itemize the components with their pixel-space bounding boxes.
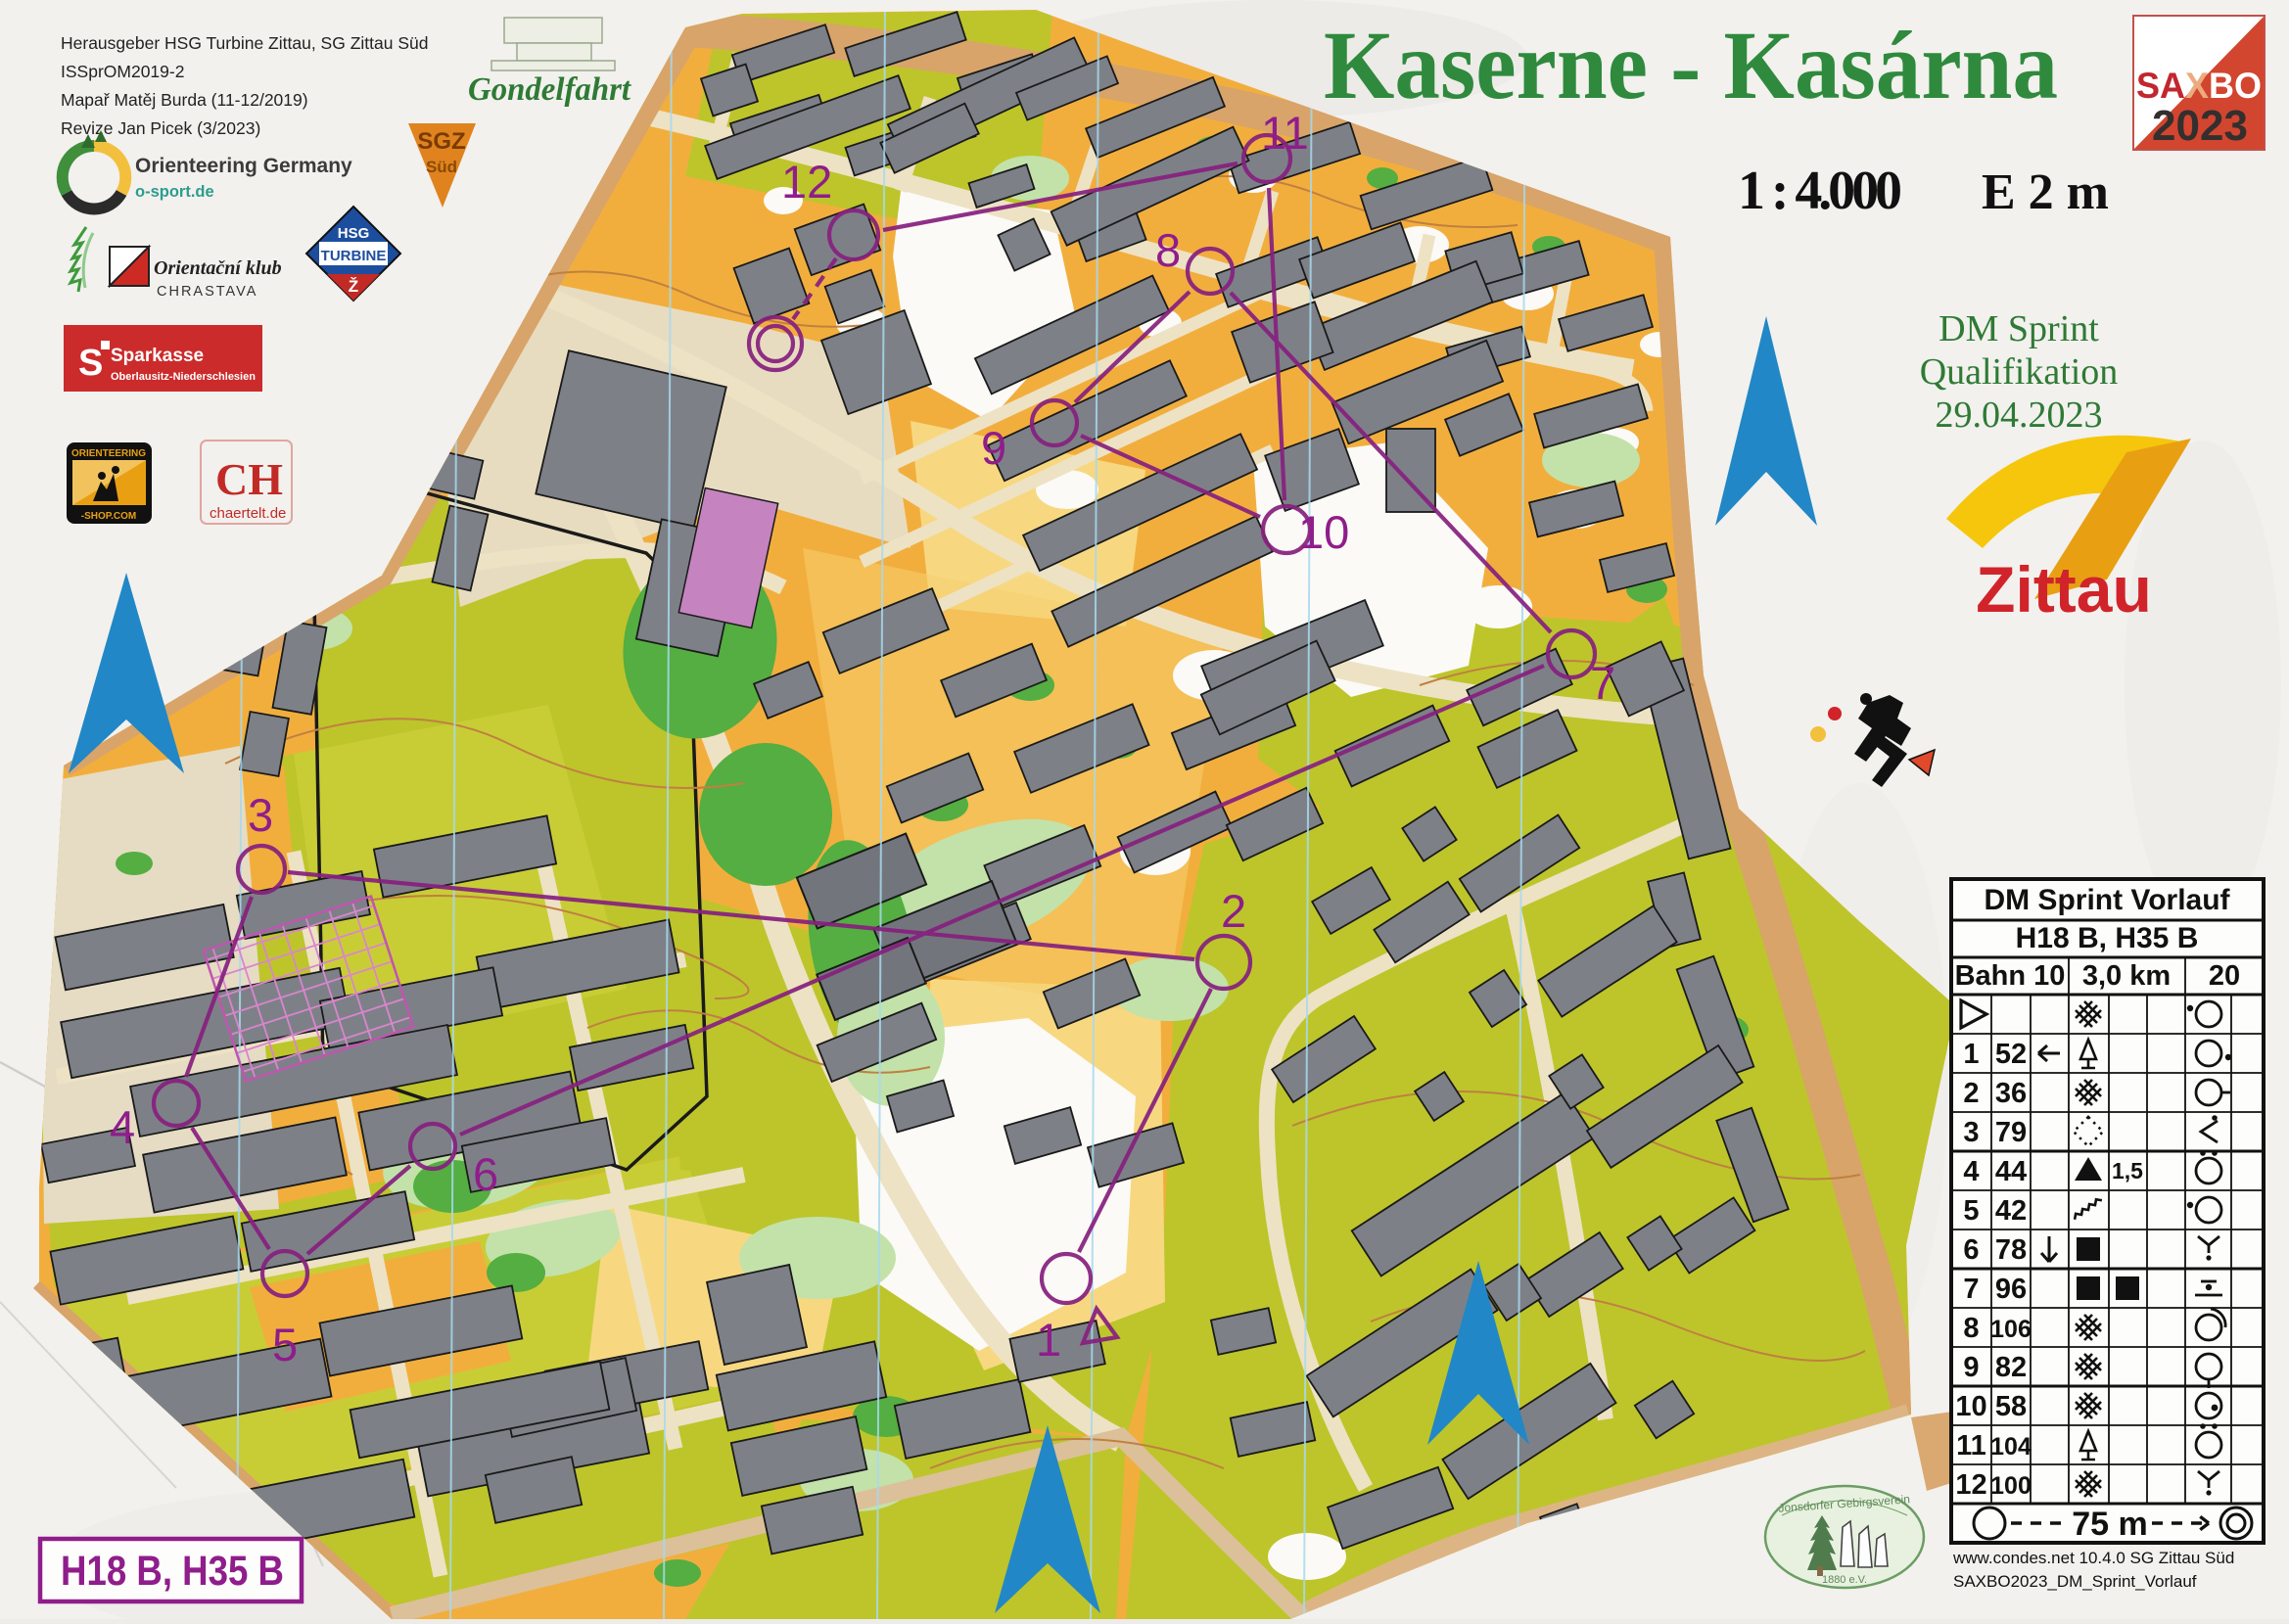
svg-text:Orienteering Germany: Orienteering Germany xyxy=(135,155,352,177)
svg-text:29.04.2023: 29.04.2023 xyxy=(1936,394,2103,436)
svg-text:2: 2 xyxy=(1963,1078,1979,1109)
svg-text:TURBINE: TURBINE xyxy=(321,248,387,264)
svg-text:58: 58 xyxy=(1995,1391,2027,1422)
svg-text:SAXBO2023_DM_Sprint_Vorlauf: SAXBO2023_DM_Sprint_Vorlauf xyxy=(1953,1572,2197,1591)
svg-text:42: 42 xyxy=(1995,1195,2027,1227)
svg-text:Herausgeber HSG Turbine Zittau: Herausgeber HSG Turbine Zittau, SG Zitta… xyxy=(61,33,428,53)
svg-text:3: 3 xyxy=(1963,1117,1979,1148)
svg-text:Zittau: Zittau xyxy=(1976,553,2152,626)
svg-text:Revize Jan Picek (3/2023): Revize Jan Picek (3/2023) xyxy=(61,118,260,138)
svg-text:11: 11 xyxy=(1261,107,1309,159)
svg-text:9: 9 xyxy=(1963,1352,1979,1383)
svg-text:1,5: 1,5 xyxy=(2112,1158,2143,1183)
svg-text:ORIENTEERING: ORIENTEERING xyxy=(71,448,146,459)
svg-text:HSG: HSG xyxy=(338,225,370,242)
svg-text:Orientační klub: Orientační klub xyxy=(154,257,282,279)
svg-text:SGZ: SGZ xyxy=(417,128,465,155)
svg-text:36: 36 xyxy=(1995,1078,2027,1109)
svg-text:S: S xyxy=(78,343,103,384)
svg-text:2023: 2023 xyxy=(2152,102,2248,150)
svg-text:8: 8 xyxy=(1963,1313,1979,1344)
svg-text:5: 5 xyxy=(272,1319,298,1370)
svg-text:Qualifikation: Qualifikation xyxy=(1920,351,2119,393)
svg-text:www.condes.net 10.4.0 SG Zitta: www.condes.net 10.4.0 SG Zittau Süd xyxy=(1952,1549,2234,1567)
svg-text:6: 6 xyxy=(473,1148,498,1200)
svg-text:12: 12 xyxy=(1955,1469,1986,1501)
svg-text:1: 1 xyxy=(1036,1314,1061,1366)
svg-text:6: 6 xyxy=(1963,1234,1979,1266)
svg-text:9: 9 xyxy=(981,422,1006,474)
svg-text:CH: CH xyxy=(215,454,283,504)
svg-text:Sparkasse: Sparkasse xyxy=(111,346,204,366)
svg-text:7: 7 xyxy=(1590,657,1615,709)
svg-text:75 m: 75 m xyxy=(2072,1506,2148,1543)
svg-text:chaertelt.de: chaertelt.de xyxy=(210,505,286,522)
svg-text:104: 104 xyxy=(1990,1433,2032,1461)
svg-text:3: 3 xyxy=(248,789,273,841)
svg-text:100: 100 xyxy=(1990,1472,2032,1500)
svg-text:3,0 km: 3,0 km xyxy=(2082,960,2171,992)
svg-text:52: 52 xyxy=(1995,1039,2027,1070)
svg-text:1880 e.V.: 1880 e.V. xyxy=(1822,1574,1867,1586)
svg-text:DM Sprint Vorlauf: DM Sprint Vorlauf xyxy=(1984,884,2230,916)
svg-text:Ž: Ž xyxy=(349,277,358,296)
svg-text:Mapař Matěj Burda (11-12/2019): Mapař Matěj Burda (11-12/2019) xyxy=(61,90,308,110)
svg-text:H18 B, H35 B: H18 B, H35 B xyxy=(2016,922,2199,954)
svg-text:1: 1 xyxy=(1963,1039,1979,1070)
svg-text:ISSprOM2019-2: ISSprOM2019-2 xyxy=(61,62,184,81)
svg-text:106: 106 xyxy=(1990,1316,2032,1343)
svg-text:-SHOP.COM: -SHOP.COM xyxy=(81,511,137,522)
svg-text:44: 44 xyxy=(1995,1156,2027,1187)
svg-text:4: 4 xyxy=(1963,1156,1979,1187)
svg-text:SAXBO: SAXBO xyxy=(2136,66,2262,106)
svg-text:10: 10 xyxy=(1298,506,1349,558)
svg-text:4: 4 xyxy=(110,1101,135,1153)
svg-text:78: 78 xyxy=(1995,1234,2027,1266)
svg-text:96: 96 xyxy=(1995,1274,2027,1305)
svg-text:8: 8 xyxy=(1155,224,1181,276)
svg-text:82: 82 xyxy=(1995,1352,2027,1383)
svg-text:5: 5 xyxy=(1963,1195,1979,1227)
svg-text:Gondelfahrt: Gondelfahrt xyxy=(468,71,631,108)
svg-text:7: 7 xyxy=(1963,1274,1979,1305)
svg-text:H18 B, H35 B: H18 B, H35 B xyxy=(61,1548,284,1595)
svg-text:10: 10 xyxy=(1955,1391,1986,1422)
svg-text:Süd: Süd xyxy=(426,158,457,176)
svg-text:11: 11 xyxy=(1956,1430,1986,1462)
svg-text:79: 79 xyxy=(1995,1117,2027,1148)
svg-text:Bahn 10: Bahn 10 xyxy=(1955,960,2066,992)
svg-text:Kaserne - Kasárna: Kaserne - Kasárna xyxy=(1324,11,2058,119)
svg-text:2: 2 xyxy=(1221,885,1246,937)
svg-text:1 : 4.000: 1 : 4.000 xyxy=(1738,161,1902,221)
svg-text:CHRASTAVA: CHRASTAVA xyxy=(157,284,257,300)
svg-text:o-sport.de: o-sport.de xyxy=(135,183,214,201)
svg-text:E 2 m: E 2 m xyxy=(1982,164,2109,220)
svg-text:DM Sprint: DM Sprint xyxy=(1939,308,2099,349)
svg-text:20: 20 xyxy=(2209,960,2240,992)
svg-text:Oberlausitz-Niederschlesien: Oberlausitz-Niederschlesien xyxy=(111,371,256,383)
svg-text:12: 12 xyxy=(781,156,832,208)
